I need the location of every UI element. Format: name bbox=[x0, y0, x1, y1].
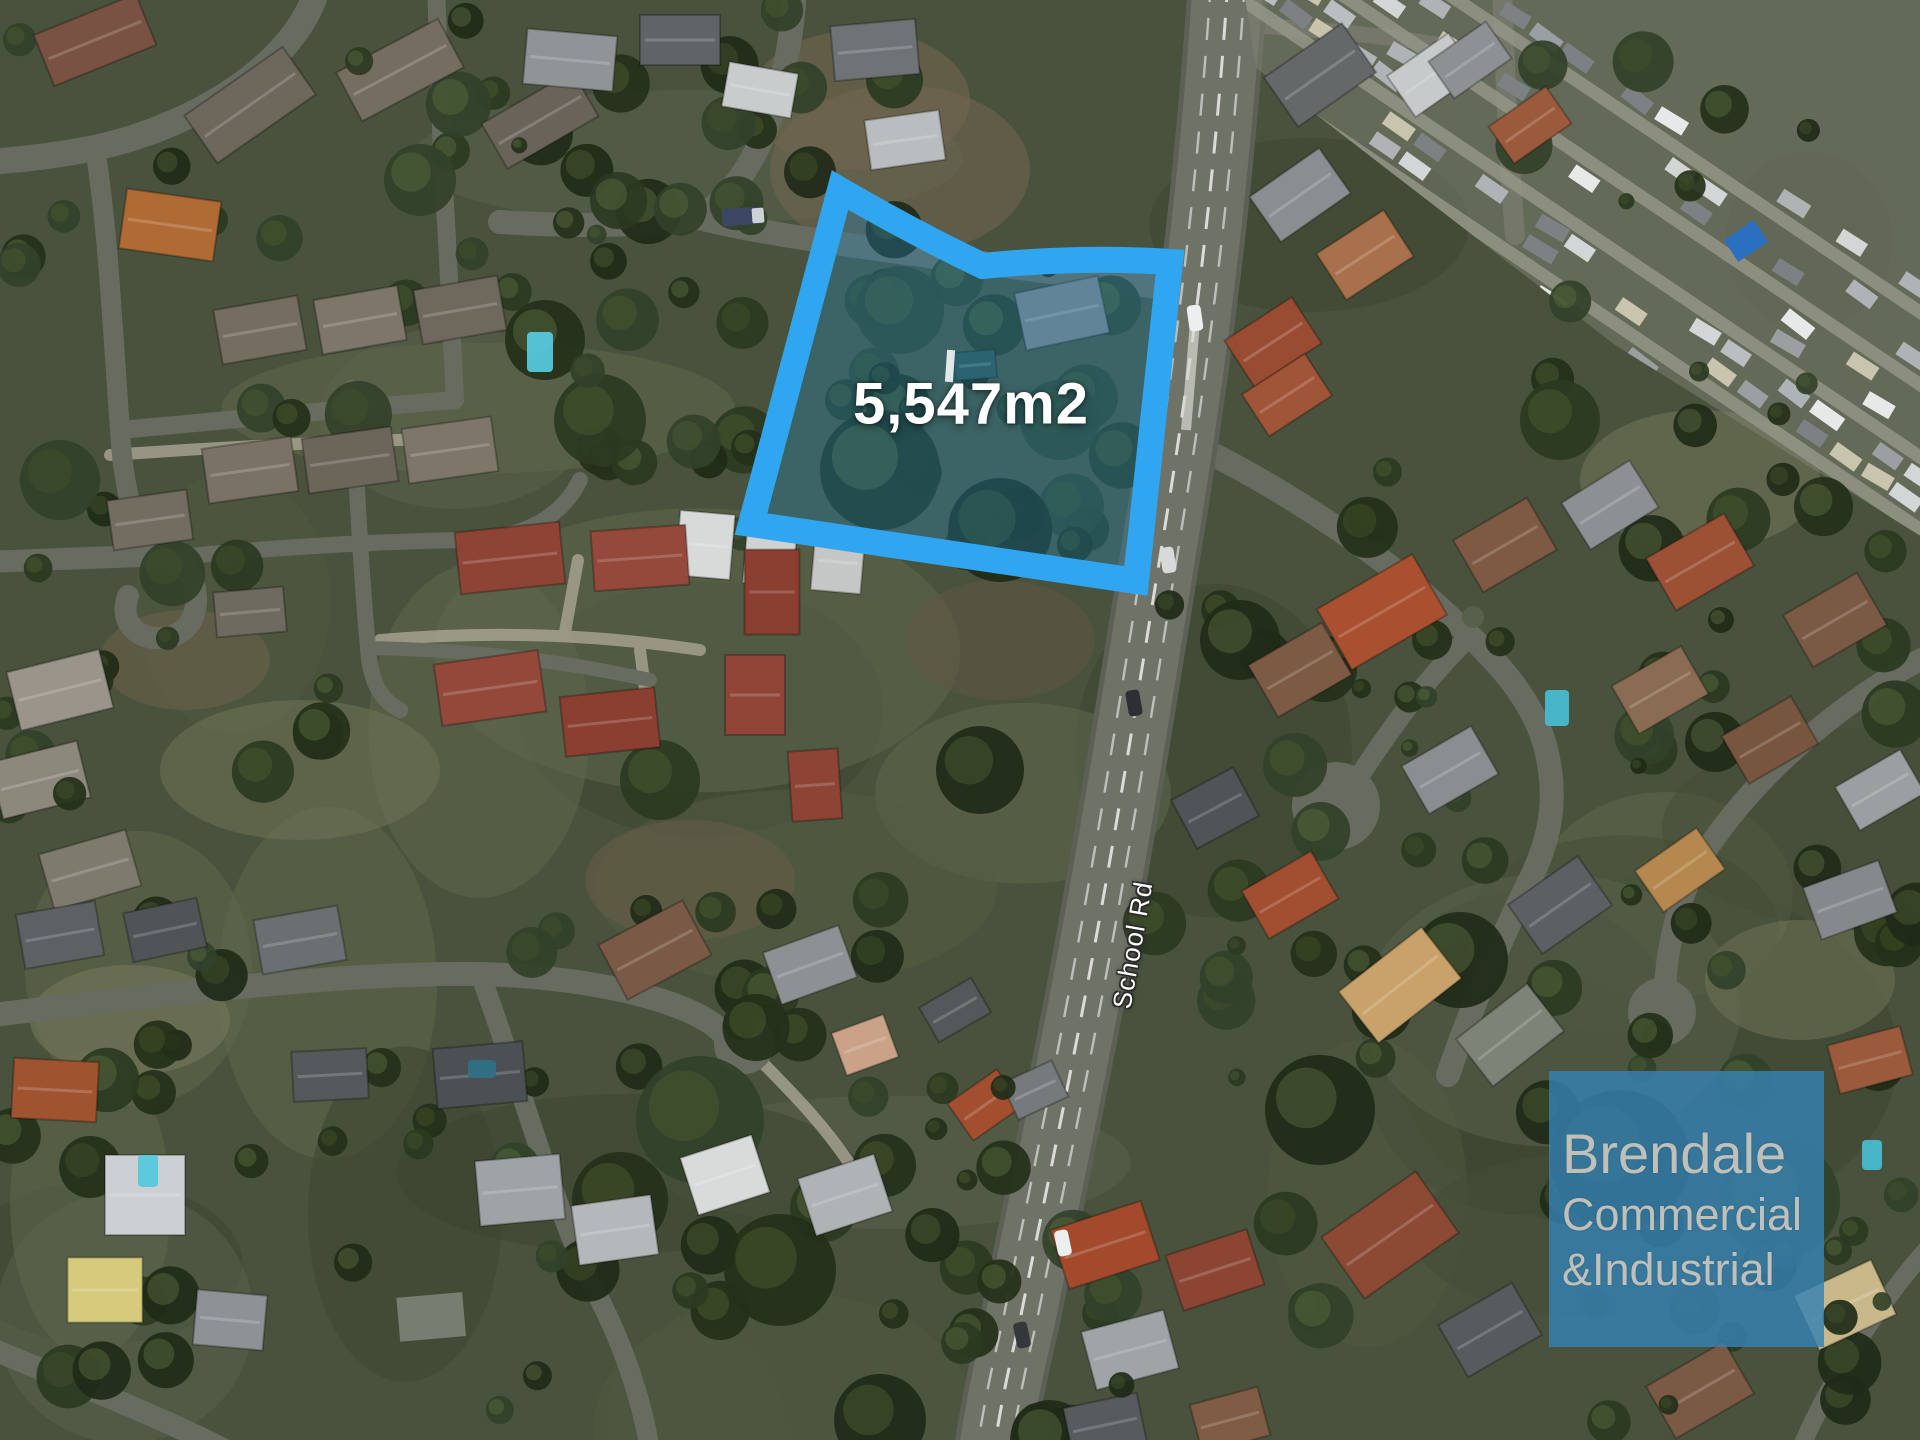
brand-watermark: Brendale Commercial &Industrial bbox=[1549, 1071, 1824, 1347]
watermark-line-1: Brendale bbox=[1562, 1126, 1816, 1182]
area-label: 5,547m2 bbox=[853, 371, 1089, 438]
watermark-line-3: &Industrial bbox=[1562, 1247, 1816, 1292]
aerial-listing-image: 5,547m2 School Rd Brendale Commercial &I… bbox=[0, 0, 1920, 1440]
watermark-line-2: Commercial bbox=[1562, 1192, 1816, 1237]
